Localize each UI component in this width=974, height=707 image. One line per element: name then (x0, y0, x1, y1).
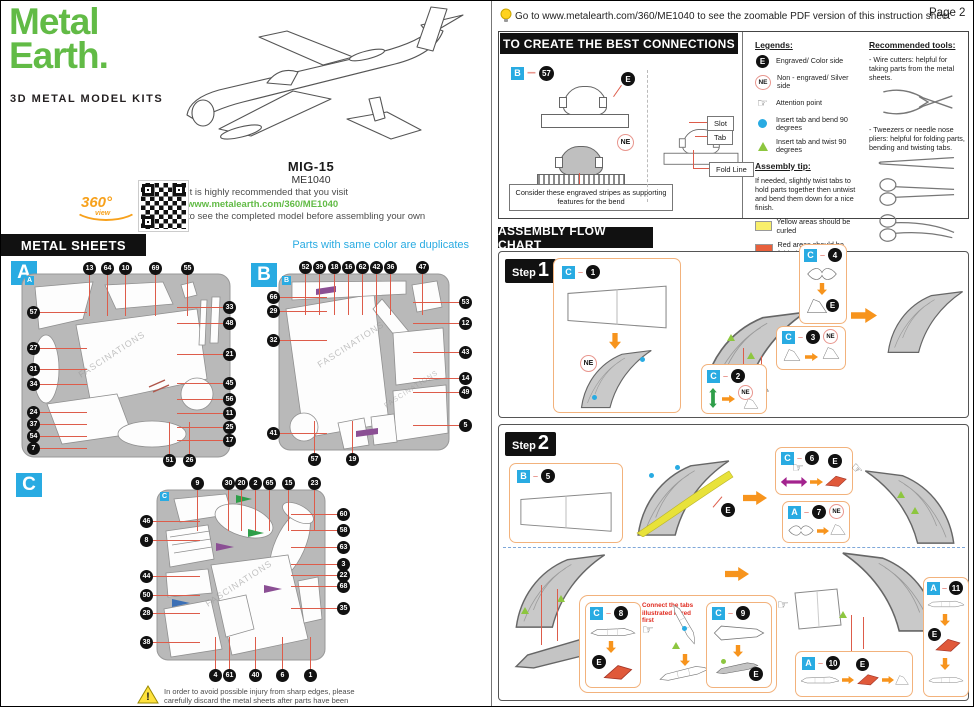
callout-line (152, 521, 200, 522)
callout-line (152, 613, 200, 614)
callout-line (413, 425, 459, 426)
best-connections-title: TO CREATE THE BEST CONNECTIONS (500, 33, 738, 54)
callout-line (152, 642, 200, 643)
callout-line (314, 421, 315, 453)
callout-line (269, 489, 270, 531)
purple-part-illustration (780, 476, 808, 488)
sheet-chip: C (590, 607, 603, 620)
part-number-badge: 60 (337, 508, 350, 521)
dash: – (606, 608, 611, 618)
sheet-letter-c: C (16, 473, 42, 497)
sheet-a-graphic: FASCINATIONS (21, 273, 231, 458)
engraved-badge: E (721, 503, 735, 517)
flow-box-c4: C – 4 E (799, 244, 847, 324)
callout-line (39, 312, 87, 313)
down-arrow-icon (940, 614, 950, 626)
part-number-badge: 2 (249, 477, 262, 490)
qr-code (139, 181, 188, 231)
long-part-illustration (927, 598, 965, 610)
part-number-badge: 32 (267, 334, 280, 347)
flat-part-illustration (518, 488, 614, 536)
callout-line (177, 383, 223, 384)
non-engraved-badge: NE (580, 355, 597, 372)
callout-line (125, 274, 126, 316)
sheet-chip: A (788, 506, 801, 519)
callout-line (177, 399, 223, 400)
callout-line (310, 637, 311, 669)
tools-panel: Recommended tools: - Wire cutters: helpf… (869, 40, 965, 249)
callout-line (177, 427, 223, 428)
green-part-illustration (708, 387, 718, 409)
sheet-chip: C (712, 607, 725, 620)
dash: – (820, 250, 825, 260)
legend-text: Non - engraved/ Silver side (777, 74, 863, 91)
engraved-badge: E (621, 72, 635, 86)
callout-line (291, 586, 337, 587)
part-number-badge: 23 (308, 477, 321, 490)
sheet-b-corner-mark: B (282, 276, 291, 285)
twist-triangle-icon (755, 142, 770, 151)
part-number-badge: 39 (313, 261, 326, 274)
bend-dot-icon (592, 395, 597, 400)
part-number-badge: 6 (276, 669, 289, 682)
engraved-badge: E (592, 655, 606, 669)
callout-line (413, 302, 459, 303)
small-part-illustration (821, 345, 841, 361)
dash: – (527, 64, 536, 82)
part-tab (559, 97, 567, 108)
legend-row: EEngraved/ Color side (755, 55, 863, 68)
attention-hand-icon: ☞ (755, 97, 770, 109)
lightbulb-icon (499, 8, 513, 24)
callout-line (177, 413, 223, 414)
callout-line (352, 421, 353, 453)
attention-hand-icon: ☞ (777, 597, 789, 613)
part-number-badge: 44 (140, 570, 153, 583)
part-tab (679, 138, 686, 147)
twist-triangle-icon (747, 352, 755, 359)
tube-part-illustration (712, 623, 766, 643)
part-badge: 7 (812, 505, 826, 519)
part-badge: 4 (828, 248, 842, 262)
part-number-badge: 52 (299, 261, 312, 274)
callout-line (279, 297, 327, 298)
sheet-chip: C (804, 249, 817, 262)
twist-triangle-icon (911, 507, 919, 514)
flat-part-illustration (564, 283, 670, 331)
part-number-badge: 13 (83, 262, 96, 275)
small-part-illustration (782, 347, 802, 363)
best-connections-section: TO CREATE THE BEST CONNECTIONS B – 57 E … (498, 31, 969, 219)
twist-triangle-icon (557, 595, 565, 602)
qr-finder-icon (173, 184, 185, 196)
right-arrow-icon (722, 395, 735, 403)
callout-line (177, 323, 223, 324)
legend-items: EEngraved/ Color sideNENon - engraved/ S… (755, 55, 863, 155)
twist-triangle-icon (672, 642, 680, 649)
metal-sheet-b: B FASCINATIONS FASCINATIONS B 5239181662… (246, 254, 481, 466)
fold-line-label: Fold Line (709, 162, 754, 177)
big-right-arrow-icon (851, 308, 877, 323)
step-2-panel: Step 2 B – 5 E C – 6 (498, 424, 969, 701)
attention-hand-icon: ☞ (792, 460, 804, 476)
non-engraved-badge: NE (617, 134, 634, 151)
part-number-badge: 29 (267, 305, 280, 318)
part-badge: 6 (805, 451, 819, 465)
part-badge: 9 (736, 606, 750, 620)
callout-line (255, 489, 256, 531)
part-number-badge: 41 (267, 427, 280, 440)
callout-line (422, 273, 423, 315)
legend-row: NENon - engraved/ Silver side (755, 74, 863, 91)
legend-text: Engraved/ Color side (776, 57, 843, 65)
big-right-arrow-icon (743, 491, 767, 505)
flow-box-c8: C – 8 E (585, 602, 641, 688)
sheet-c-corner-mark: C (160, 492, 169, 501)
callout-line (851, 615, 852, 651)
part-number-badge: 43 (459, 346, 472, 359)
bent-part-illustration (562, 349, 670, 409)
twist-triangle-icon (521, 607, 529, 614)
engraved-badge: E (928, 628, 941, 641)
pdf-tip-text: Go to www.metalearth.com/360/ME1040 to s… (515, 11, 950, 22)
callout-line (282, 637, 283, 669)
tools-title: Recommended tools: (869, 40, 965, 50)
example-part-reference: B – 57 (511, 64, 554, 82)
logo-line-1: Metal (9, 5, 108, 39)
callout-line (197, 489, 198, 531)
bent-nose-pliers-icon (875, 213, 959, 243)
part-number-badge: 19 (346, 453, 359, 466)
right-arrow-icon (805, 353, 818, 361)
bend-dot-icon (640, 357, 645, 362)
callout-line (177, 307, 223, 308)
dash: – (728, 608, 733, 618)
metal-sheet-a: A FASCINATIONS A 13641069555126572731342… (9, 257, 241, 466)
legend-text: Attention point (776, 99, 822, 107)
step2-top-result-illustration (855, 469, 965, 545)
flow-box-a7: A – 7 NE (782, 501, 850, 543)
dash: – (804, 507, 809, 517)
sheet-chip: C (562, 266, 575, 279)
part-number-badge: 38 (140, 636, 153, 649)
part-number-badge: 68 (337, 580, 350, 593)
part-number-badge: 66 (267, 291, 280, 304)
bend-dot-icon (682, 626, 687, 631)
dash: – (798, 332, 803, 342)
callout-line (291, 608, 337, 609)
sheet-a-corner-mark: A (25, 276, 34, 285)
part-number-badge: 1 (304, 669, 317, 682)
part-number-badge: 35 (337, 602, 350, 615)
step2-row-divider (503, 547, 965, 548)
part-number-badge: 26 (183, 454, 196, 467)
page-number: Page 2 (929, 7, 965, 19)
part-tab (599, 97, 607, 108)
flow-box-c6: C – 6 ☞ E (775, 447, 853, 495)
tweezers-icon (876, 155, 958, 171)
part-number-badge: 31 (27, 363, 40, 376)
view-label: view (95, 210, 110, 217)
callout-line (557, 589, 558, 641)
column-divider (491, 1, 492, 707)
step-1-panel: Step 1 C – 1 NE C – (498, 251, 969, 418)
big-right-arrow-icon (725, 567, 749, 581)
callout-line (291, 575, 337, 576)
part-badge: 1 (586, 265, 600, 279)
twist-triangle-icon (839, 611, 847, 618)
dash: – (818, 658, 823, 668)
flow-box-c3: C – 3 NE (776, 326, 846, 370)
non-engraved-badge: NE (738, 385, 753, 400)
small-part-illustration (829, 522, 847, 537)
part-badge: 2 (731, 369, 745, 383)
part-number-badge: 57 (308, 453, 321, 466)
sheet-letter-b: B (251, 263, 277, 287)
flow-box-c9: C – 9 E (706, 602, 772, 688)
part-badge: 5 (541, 469, 555, 483)
part-tab (595, 157, 603, 168)
part-number-badge: 36 (384, 261, 397, 274)
legend-text: Insert tab and twist 90 degrees (776, 138, 863, 155)
visit-line-1: It is highly recommended that you visit (187, 187, 348, 198)
duplicates-note: Parts with same color are duplicates (231, 239, 469, 251)
callout-line (39, 448, 87, 449)
example-part-badge: 57 (539, 66, 554, 81)
part-number-badge: 21 (223, 348, 236, 361)
part-number-badge: 8 (140, 534, 153, 547)
callout-line (39, 424, 87, 425)
callout-line (152, 576, 200, 577)
part-number-badge: 46 (140, 515, 153, 528)
callout-line (279, 433, 327, 434)
sheet-chip: A (927, 582, 940, 595)
callout-line (376, 273, 377, 315)
callout-line (169, 422, 170, 454)
bowtie-part-illustration (806, 264, 838, 284)
callout-line (541, 585, 542, 645)
right-arrow-icon (817, 527, 829, 535)
part-number-badge: 28 (140, 607, 153, 620)
part-number-badge: 61 (223, 669, 236, 682)
bend-dot-icon (649, 473, 654, 478)
part-number-badge: 30 (222, 477, 235, 490)
callout-line (177, 440, 223, 441)
example-sheet-chip: B (511, 67, 524, 80)
callout-line (241, 489, 242, 531)
callout-line (155, 274, 156, 316)
sheet-chip: C (782, 331, 795, 344)
assembled-part-illustration (928, 674, 964, 686)
engraved-badge: E (749, 667, 763, 681)
part-number-badge: 18 (328, 261, 341, 274)
qr-finder-icon (142, 184, 154, 196)
legend-text: Insert tab and bend 90 degrees (776, 116, 863, 133)
bend-dot-icon (675, 465, 680, 470)
callout-line (39, 369, 87, 370)
substep-container: C – 8 E Connect the tabs illustrated in … (579, 595, 777, 693)
sheet-chip: A (802, 657, 815, 670)
part-number-badge: 47 (416, 261, 429, 274)
tab-label: Tab (707, 130, 733, 145)
part-number-badge: 48 (223, 317, 236, 330)
callout-line (413, 352, 459, 353)
callout-line (693, 168, 709, 169)
callout-line (305, 273, 306, 315)
part-bar (541, 114, 629, 128)
bowtie-part-illustration (787, 522, 815, 539)
callout-line (229, 637, 230, 669)
twist-triangle-icon (721, 659, 726, 664)
step1-result-illustration (885, 266, 965, 378)
step-1-label: Step 1 (505, 259, 556, 283)
callout-line (334, 273, 335, 315)
callout-line (314, 489, 315, 531)
callout-line (152, 595, 200, 596)
legend-row: Insert tab and bend 90 degrees (755, 116, 863, 133)
logo-line-2: Earth. (9, 39, 108, 73)
callout-line (279, 340, 327, 341)
assembly-tip-text: If needed, slightly twist tabs to hold p… (755, 176, 863, 212)
down-arrow-icon (733, 645, 743, 657)
part-number-badge: 49 (459, 386, 472, 399)
non-engraved-badge-icon: NE (755, 75, 771, 90)
callout-line (413, 323, 459, 324)
part-number-badge: 10 (119, 262, 132, 275)
part-number-badge: 62 (356, 261, 369, 274)
callout-line (255, 637, 256, 669)
part-number-badge: 12 (459, 317, 472, 330)
metal-sheet-c: C FASCINATIONS C 9302026515234614061468 (9, 469, 354, 691)
part-number-badge: 42 (370, 261, 383, 274)
sharp-edges-warning: In order to avoid possible injury from s… (164, 687, 374, 707)
360-view-badge: 360° view (73, 189, 137, 223)
callout-line (288, 489, 289, 531)
visit-url: www.metalearth.com/360/ME1040 (187, 199, 338, 210)
dash: – (942, 583, 947, 593)
360-label: 360° (81, 194, 112, 211)
section-divider (742, 32, 743, 218)
part-number-badge: 27 (27, 342, 40, 355)
down-arrow-icon (609, 333, 621, 349)
part-number-badge: 34 (27, 378, 40, 391)
svg-text:!: ! (146, 691, 150, 703)
right-arrow-icon (810, 478, 823, 486)
dash: – (723, 371, 728, 381)
engraved-badge: E (856, 658, 869, 671)
part-number-badge: 33 (223, 301, 236, 314)
part-number-badge: 57 (27, 306, 40, 319)
part-number-badge: 45 (223, 377, 236, 390)
callout-line (39, 412, 87, 413)
engraved-badge: E (826, 299, 839, 312)
callout-line (413, 392, 459, 393)
tweezers-text: - Tweezers or needle nose pliers: helpfu… (869, 125, 965, 152)
callout-line (291, 530, 337, 531)
part-number-badge: 11 (223, 407, 236, 420)
part-number-badge: 17 (223, 434, 236, 447)
step-number: 1 (538, 262, 549, 279)
part-badge: 10 (826, 656, 840, 670)
sheet-chip: B (517, 470, 530, 483)
dash: – (533, 471, 538, 481)
callout-line (89, 274, 90, 316)
down-arrow-icon (940, 658, 950, 670)
part-number-badge: 4 (209, 669, 222, 682)
right-arrow-icon (842, 676, 854, 684)
part-number-badge: 7 (27, 442, 40, 455)
dashed-divider (647, 70, 649, 202)
legends-panel: Legends: EEngraved/ Color sideNENon - en… (755, 40, 863, 263)
attention-hand-icon: ☞ (642, 622, 654, 638)
flat-part-illustration (590, 625, 636, 639)
callout-line (107, 274, 108, 316)
metal-earth-logo: Metal Earth. (9, 5, 108, 73)
legend-row: Insert tab and twist 90 degrees (755, 138, 863, 155)
callout-line (291, 547, 337, 548)
part-number-badge: 56 (223, 393, 236, 406)
step-word: Step (512, 441, 536, 452)
non-engraved-part-illustration (537, 144, 625, 188)
part-number-badge: 9 (191, 477, 204, 490)
part-number-badge: 20 (235, 477, 248, 490)
small-part-illustration (894, 674, 910, 686)
step-word: Step (512, 268, 536, 279)
callout-line (291, 564, 337, 565)
down-arrow-icon (606, 641, 616, 653)
callout-line (215, 637, 216, 669)
part-number-badge: 63 (337, 541, 350, 554)
callout-line (348, 273, 349, 315)
part-number-badge: 50 (140, 589, 153, 602)
mig15-line-drawing (171, 3, 481, 158)
callout-line (689, 122, 707, 123)
metal-sheets-header: METAL SHEETS (1, 234, 146, 256)
callout-line (362, 273, 363, 315)
callout-line (695, 136, 707, 137)
instruction-sheet-page: Metal Earth. 3D METAL MODEL KITS MIG-15 … (0, 0, 974, 707)
bend-dot-icon (755, 119, 770, 128)
part-number-badge: 58 (337, 524, 350, 537)
step-number: 2 (538, 435, 549, 452)
assembly-flow-chart-title: ASSEMBLY FLOW CHART (498, 227, 653, 248)
legends-title: Legends: (755, 40, 863, 50)
flow-box-c2: C – 2 NE (701, 364, 767, 414)
model-name: MIG-15 (171, 159, 451, 174)
assembly-tip-title: Assembly tip: (755, 161, 863, 171)
dash: – (578, 267, 583, 277)
callout-line (291, 514, 337, 515)
part-number-badge: 55 (181, 262, 194, 275)
legend-row: ☞Attention point (755, 97, 863, 110)
sheet-chip: C (707, 370, 720, 383)
part-number-badge: 14 (459, 372, 472, 385)
callout-line (228, 489, 229, 531)
down-arrow-icon (817, 283, 827, 295)
part-badge: 3 (806, 330, 820, 344)
red-part-illustration (602, 663, 634, 681)
callout-line (279, 311, 327, 312)
right-arrow-icon (882, 676, 894, 684)
callout-line (863, 617, 864, 649)
callout-line (187, 274, 188, 316)
flow-box-c1: C – 1 NE (553, 258, 681, 413)
yellow-swatch-icon (755, 221, 772, 231)
part-number-badge: 15 (282, 477, 295, 490)
needle-nose-pliers-icon (875, 177, 959, 207)
callout-line (319, 273, 320, 315)
part-badge: 8 (614, 606, 628, 620)
